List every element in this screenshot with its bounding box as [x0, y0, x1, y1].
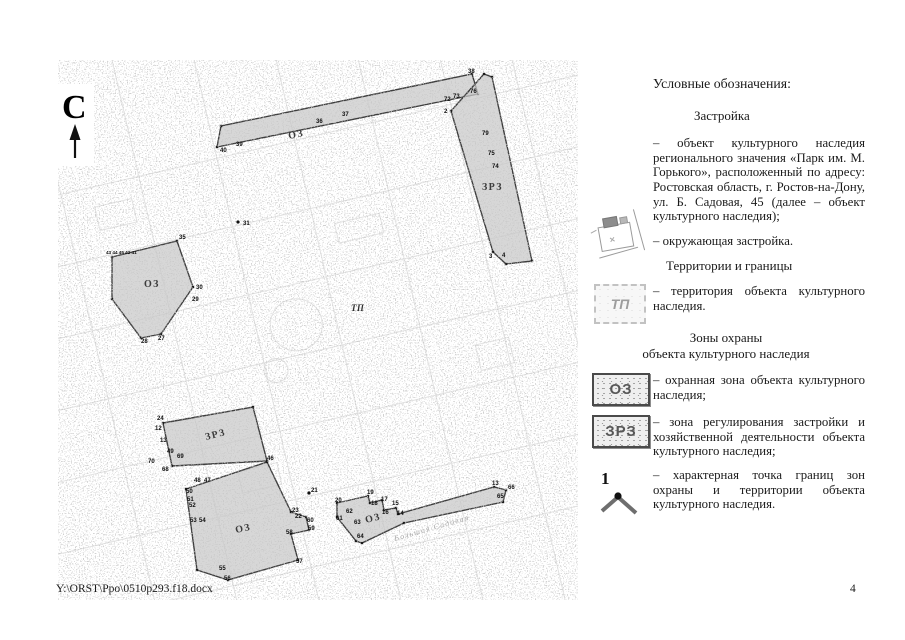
legend-group-zones-line2: объекта культурного наследия [590, 346, 862, 362]
boundary-point-number: 27 [158, 336, 165, 342]
boundary-point-number: 15 [392, 501, 399, 507]
boundary-point-number: 65 [497, 494, 504, 500]
boundary-point-number: 21 [311, 488, 318, 494]
boundary-point-number: 54 [199, 518, 206, 524]
boundary-point-number: 38 [468, 69, 475, 75]
boundary-point-number: 14 [397, 511, 404, 517]
boundary-point-number: 72 [444, 97, 451, 103]
boundary-point-number: 66 [508, 485, 515, 491]
boundary-point-number: 12 [155, 426, 162, 432]
boundary-point-number: 56 [224, 576, 231, 582]
boundary-point-number: 74 [492, 164, 499, 170]
boundary-point-number: 75 [488, 151, 495, 157]
legend-item-point-text: – характерная точка границ зон охраны и … [653, 468, 865, 512]
boundary-point-number: 24 [157, 416, 164, 422]
zrz-swatch-label: ЗРЗ [605, 423, 637, 440]
zone-label: ОЗ [144, 279, 160, 290]
boundary-point-number: 40 [220, 148, 227, 154]
legend: Условные обозначения: Застройка – объект… [590, 70, 885, 540]
boundary-point-number: 46 [267, 456, 274, 462]
boundary-point-number: 29 [192, 297, 199, 303]
boundary-point-number: 69 [177, 454, 184, 460]
boundary-point-dot [236, 220, 239, 223]
zrz-zone-swatch: ЗРЗ [592, 415, 650, 448]
boundary-point-number: 50 [186, 489, 193, 495]
legend-group-territory: Территории и границы [666, 258, 792, 274]
boundary-point-number: 48 [194, 478, 201, 484]
boundary-point-number: 52 [189, 503, 196, 509]
boundary-point-number: 59 [308, 526, 315, 532]
legend-item-object-text: – объект культурного наследия региональн… [653, 136, 865, 224]
legend-group-zones: Зоны охраны объекта культурного наследия [590, 330, 862, 363]
boundary-point-number: 55 [219, 566, 226, 572]
boundary-point-number: 60 [307, 518, 314, 524]
legend-item-territory-text: – территория объекта культурного наследи… [653, 284, 865, 313]
boundary-point-number: 49 [167, 449, 174, 455]
boundary-point-number: 58 [286, 530, 293, 536]
legend-item-zrz-text: – зона регулирования застройки и хозяйст… [653, 415, 865, 459]
legend-title: Условные обозначения: [653, 76, 791, 92]
boundary-point-number: 36 [316, 119, 323, 125]
boundary-point-number: 53 [190, 518, 197, 524]
boundary-point-number: 37 [342, 112, 349, 118]
zone-label: ЗРЗ [482, 182, 503, 193]
boundary-point-cluster: 43 44 45 42 41 [106, 250, 137, 255]
legend-group-zastroika: Застройка [694, 108, 750, 124]
boundary-point-number: 17 [381, 497, 388, 503]
footer-file-path: Y:\ORST\Ppo\0510p293.f18.docx [56, 583, 213, 595]
boundary-point-number: 22 [295, 514, 302, 520]
boundary-point-number: 73 [453, 94, 460, 100]
boundary-point-number: 70 [148, 459, 155, 465]
characteristic-point-number: 1 [601, 469, 610, 488]
legend-group-zones-line1: Зоны охраны [590, 330, 862, 346]
legend-item-oz-text: – охранная зона объекта культурного насл… [653, 373, 865, 402]
boundary-point-number: 18 [371, 501, 378, 507]
boundary-point-number: 30 [196, 285, 203, 291]
boundary-point-number: 20 [335, 498, 342, 504]
surrounding-buildings-icon [590, 208, 652, 266]
boundary-point-number: 62 [346, 509, 353, 515]
boundary-point-number: 16 [382, 510, 389, 516]
boundary-point-number: 39 [236, 142, 243, 148]
boundary-point-number: 28 [141, 339, 148, 345]
boundary-point-number: 13 [160, 438, 167, 444]
boundary-point-dot [307, 491, 310, 494]
boundary-point-number: 57 [296, 559, 303, 565]
oz-swatch-label: ОЗ [609, 381, 632, 398]
boundary-point-number: 31 [243, 221, 250, 227]
characteristic-point-icon: 1 [596, 466, 640, 516]
oz-zone-swatch: ОЗ [592, 373, 650, 406]
characteristic-point-dot [614, 492, 621, 499]
legend-item-surround-text: – окружающая застройка. [653, 234, 865, 249]
boundary-point-number: 13 [492, 481, 499, 487]
boundary-point-number: 47 [204, 478, 211, 484]
page-number: 4 [850, 583, 856, 595]
boundary-point-number: 79 [482, 131, 489, 137]
tp-territory-swatch: ТП [594, 284, 646, 324]
boundary-point-number: 35 [179, 235, 186, 241]
boundary-point-number: 19 [367, 490, 374, 496]
zone-label: ТП [351, 303, 365, 313]
boundary-point-number: 76 [470, 89, 477, 95]
scan-noise-overlay [58, 60, 578, 600]
document-page: 4039363738727376279757434313530292728241… [0, 0, 905, 640]
tp-swatch-label: ТП [611, 296, 630, 312]
boundary-point-number: 61 [336, 516, 343, 522]
site-plan-map: 4039363738727376279757434313530292728241… [58, 60, 578, 600]
boundary-point-number: 64 [357, 534, 364, 540]
north-arrow: С [58, 84, 94, 166]
boundary-point-number: 68 [162, 467, 169, 473]
boundary-point-number: 63 [354, 520, 361, 526]
north-letter: С [62, 89, 87, 126]
